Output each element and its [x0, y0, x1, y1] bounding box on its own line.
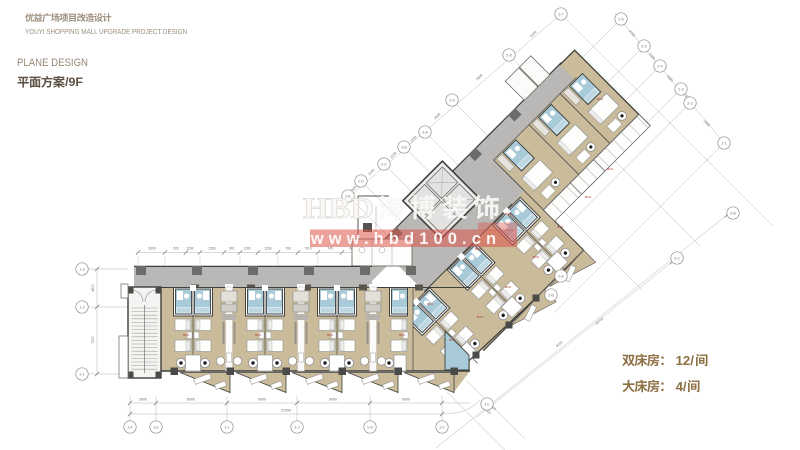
svg-text:1-C: 1-C — [439, 425, 445, 429]
svg-text:8F01: 8F01 — [607, 167, 614, 171]
svg-text:8F01: 8F01 — [585, 195, 592, 199]
svg-text:2-6: 2-6 — [618, 17, 623, 21]
svg-text:2-3: 2-3 — [678, 87, 683, 91]
svg-text:8F01: 8F01 — [505, 212, 512, 216]
svg-text:2-D: 2-D — [358, 179, 364, 183]
svg-text:8F01: 8F01 — [597, 97, 604, 101]
svg-text:3000: 3000 — [139, 398, 147, 402]
svg-text:/9F: /9F — [65, 75, 83, 89]
svg-text:1260: 1260 — [186, 247, 193, 251]
svg-text:2-B: 2-B — [401, 145, 407, 149]
svg-text:8F01: 8F01 — [399, 333, 406, 337]
svg-text:HBD: HBD — [303, 192, 374, 225]
svg-text:3000: 3000 — [148, 247, 155, 251]
svg-text:2-C: 2-C — [381, 162, 387, 166]
svg-text:2-4: 2-4 — [657, 64, 662, 68]
svg-text:8F01: 8F01 — [427, 302, 434, 306]
svg-text:www.hbd100.cn: www.hbd100.cn — [310, 230, 501, 248]
svg-text:8F01: 8F01 — [255, 333, 262, 337]
svg-text:1-E: 1-E — [153, 425, 159, 429]
svg-text:2-A: 2-A — [422, 130, 428, 134]
svg-text:8F01: 8F01 — [533, 255, 540, 259]
svg-text:12/: 12/ — [676, 353, 695, 368]
svg-text:2230: 2230 — [264, 247, 271, 251]
svg-text:9000: 9000 — [329, 398, 337, 402]
svg-text:1-L: 1-L — [224, 425, 229, 429]
svg-text:1-F: 1-F — [127, 425, 133, 429]
svg-text:1-J: 1-J — [295, 425, 300, 429]
svg-text:4/: 4/ — [676, 379, 687, 394]
svg-text:8F01: 8F01 — [327, 333, 334, 337]
svg-text:8F01: 8F01 — [477, 315, 484, 319]
svg-text:2-8: 2-8 — [506, 53, 511, 57]
svg-text:PLANE DESIGN: PLANE DESIGN — [17, 57, 88, 69]
svg-text:2-C: 2-C — [674, 256, 680, 260]
svg-text:8F01: 8F01 — [505, 285, 512, 289]
svg-text:1-1: 1-1 — [79, 372, 84, 376]
svg-text:1-2: 1-2 — [79, 305, 84, 309]
svg-text:9000: 9000 — [402, 398, 410, 402]
svg-text:6000: 6000 — [187, 398, 195, 402]
svg-text:YOUYI SHOPPING MALL UPGRADE PR: YOUYI SHOPPING MALL UPGRADE PROJECT DESI… — [25, 29, 187, 36]
svg-text:7200: 7200 — [91, 336, 95, 344]
svg-text:700: 700 — [285, 247, 291, 251]
svg-text:2-2: 2-2 — [687, 101, 692, 105]
svg-text:520: 520 — [173, 247, 179, 251]
svg-text:2260: 2260 — [208, 247, 215, 251]
svg-text:1200: 1200 — [243, 247, 250, 251]
svg-text:2-7: 2-7 — [558, 12, 563, 16]
svg-text:1-3: 1-3 — [79, 267, 84, 271]
svg-text:2-5: 2-5 — [641, 44, 646, 48]
svg-text:2-B: 2-B — [548, 293, 554, 297]
svg-text:2-1: 2-1 — [721, 141, 726, 145]
svg-text:27000: 27000 — [281, 409, 291, 413]
svg-text:1-G: 1-G — [367, 425, 373, 429]
svg-text:8F01: 8F01 — [557, 225, 564, 229]
svg-text:1-C: 1-C — [484, 402, 490, 406]
svg-text:2-A: 2-A — [558, 274, 564, 278]
svg-text:8F01: 8F01 — [183, 333, 190, 337]
svg-text:801: 801 — [229, 247, 235, 251]
svg-text:2-B: 2-B — [730, 211, 736, 215]
svg-text:2-9: 2-9 — [449, 98, 454, 102]
svg-text:4800: 4800 — [91, 284, 95, 292]
svg-text:8F01: 8F01 — [449, 338, 456, 342]
svg-text:9000: 9000 — [258, 398, 266, 402]
